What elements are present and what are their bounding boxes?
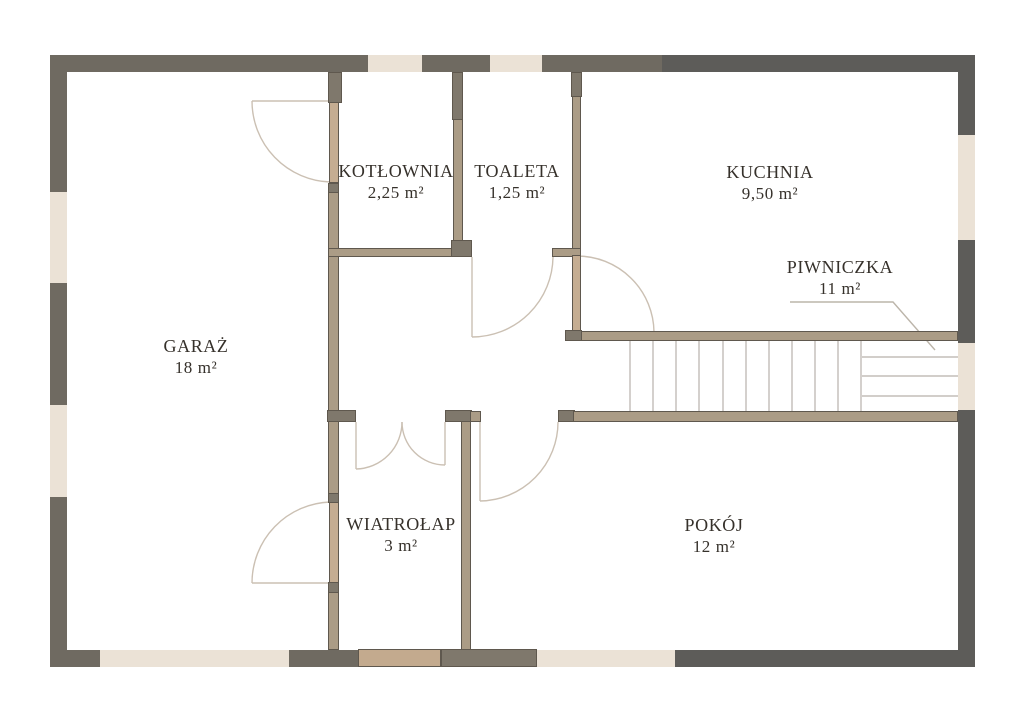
wall-garage-wiatrolap-upper [328,421,339,494]
wall-cap-kuchnia-bottom-left [565,330,582,341]
exterior-wall-top-2 [422,55,490,72]
stairs [630,341,958,411]
pokoj-door-swing [480,422,558,501]
kuchnia-door-swing [577,256,654,332]
exterior-wall-right-1 [958,55,975,135]
garage-kotlownia-door-swing [252,101,330,182]
exterior-wall-bottom-1 [50,650,100,667]
piwniczka-leader-line [790,302,935,350]
room-label-kuchnia: KUCHNIA 9,50 m² [726,161,813,205]
room-label-garaz: GARAŻ 18 m² [164,335,229,379]
wall-toaleta-kuchnia [572,96,581,249]
garage-gate-opening [100,650,289,667]
wiatrolap-double-door-swing [356,422,445,469]
exterior-wall-bottom-2 [289,650,358,667]
exterior-wall-left-1 [50,55,67,192]
window-bottom-pokoj [537,650,675,667]
wall-stub-toaleta-kuchnia [571,72,582,97]
garage-wiatrolap-door-swing [252,502,330,583]
room-name: KUCHNIA [726,161,813,183]
room-name: WIATROŁAP [346,513,455,535]
room-label-piwniczka: PIWNICZKA 11 m² [787,256,893,300]
room-name: GARAŻ [164,335,229,357]
entry-door [358,649,441,667]
wall-kotlownia-toaleta [453,119,463,241]
floor-plan: KOTŁOWNIA 2,25 m² TOALETA 1,25 m² KUCHNI… [0,0,1024,724]
wall-wiatrolap-pokoj [461,421,471,650]
room-label-pokoj: POKÓJ 12 m² [684,514,743,558]
wall-stub-kotlownia-toaleta [452,72,463,120]
wall-stairs-bottom [573,411,958,422]
room-area: 1,25 m² [474,182,559,204]
wall-corridor-bottom-short [470,411,481,422]
window-right-stairs [958,343,975,410]
exterior-wall-right-3 [958,410,975,667]
garage-wiatrolap-door-leaf [329,502,339,583]
room-area: 18 m² [164,357,229,379]
kuchnia-door-leaf [572,255,581,333]
exterior-wall-left-2 [50,283,67,405]
plan-linework [0,0,1024,724]
window-right-kuchnia [958,135,975,240]
room-area: 12 m² [684,536,743,558]
window-top-toaleta [490,55,542,72]
toaleta-door-swing [472,257,553,337]
window-left-2 [50,405,67,497]
wall-cap-toaleta-door-jamb [451,240,472,257]
window-left-1 [50,192,67,283]
room-name: KOTŁOWNIA [338,160,453,182]
wall-kuchnia-bottom [565,331,958,341]
wall-stub-garage-top [328,72,342,103]
room-name: POKÓJ [684,514,743,536]
room-label-toaleta: TOALETA 1,25 m² [474,160,559,204]
wall-garage-corridor [328,192,339,411]
exterior-wall-bottom-4 [675,650,975,667]
room-area: 11 m² [787,278,893,300]
room-label-wiatrolap: WIATROŁAP 3 m² [346,513,455,557]
wall-kotlownia-bottom [328,248,463,257]
room-name: TOALETA [474,160,559,182]
exterior-wall-left-3 [50,497,67,667]
room-name: PIWNICZKA [787,256,893,278]
exterior-wall-right-2 [958,240,975,343]
exterior-wall-top-1 [50,55,368,72]
exterior-wall-bottom-3 [441,649,537,667]
window-top-kotlownia [368,55,422,72]
room-label-kotlownia: KOTŁOWNIA 2,25 m² [338,160,453,204]
room-area: 9,50 m² [726,183,813,205]
exterior-wall-top-4 [662,55,975,72]
wall-garage-wiatrolap-lower [328,592,339,650]
room-area: 2,25 m² [338,182,453,204]
exterior-wall-top-3 [542,55,662,72]
room-area: 3 m² [346,535,455,557]
